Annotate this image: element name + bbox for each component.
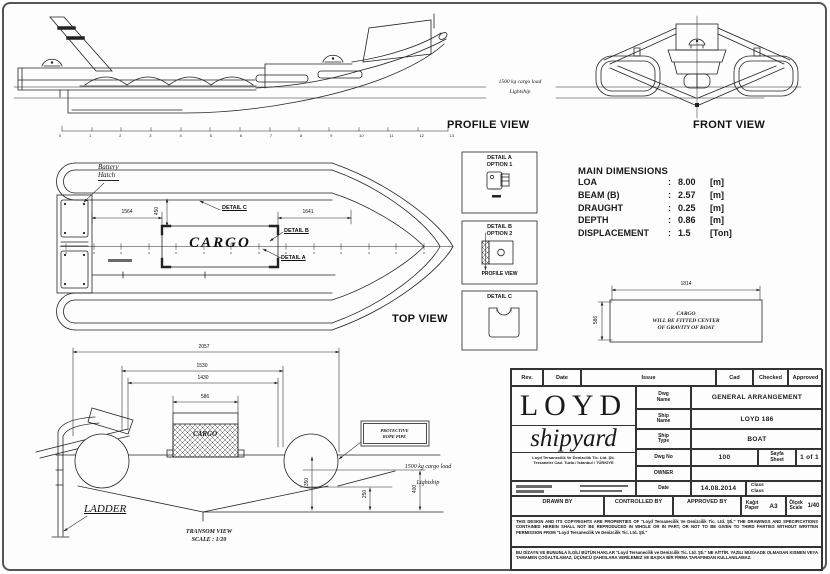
scale-cell: ÖlçekScale 1/40	[786, 496, 823, 516]
paper-value: A3	[762, 503, 785, 510]
dim-1814: 1814	[666, 281, 706, 287]
transom-scale-label: SCALE : 1/20	[178, 537, 240, 543]
transom-cargo-load-note: 1500 kg cargo load	[393, 464, 463, 470]
main-dimensions-block: MAIN DIMENSIONS LOA:8.00[m] BEAM (B):2.5…	[578, 166, 808, 241]
profile-cargo-load-note: 1500 kg cargo load	[488, 79, 552, 85]
date-value: 14.08.2014	[691, 481, 746, 496]
title-block: Rev. Date Issue Cad Checked Approved LOY…	[510, 368, 822, 570]
titleblock-header-checked: Checked	[753, 369, 788, 386]
scale-value: 1/40	[805, 503, 822, 509]
dwg-no-value: 100	[691, 449, 758, 466]
front-view-label: FRONT VIEW	[693, 119, 765, 131]
transom-lightship-note: Lightship	[393, 480, 463, 486]
dim-1430: 1430	[185, 375, 221, 381]
protective-rope-pipe-label: PROTECTIVE ROPE PIPE	[363, 424, 426, 443]
dim-350: 350	[304, 470, 310, 494]
ruler-number: 9	[327, 133, 335, 138]
approved-by-cell: APPROVED BY	[673, 496, 741, 516]
dwg-name-label: DwgName	[636, 386, 691, 409]
ship-type-value: BOAT	[691, 429, 823, 449]
ship-type-label: ShipType	[636, 429, 691, 449]
main-dimension-row: DEPTH:0.86[m]	[578, 215, 808, 228]
ruler-number: 13	[448, 133, 456, 138]
legal-text-english: THIS DESIGN AND ITS COPYRIGHTS ARE PROPE…	[511, 516, 823, 547]
class-cell: Class Class	[746, 481, 823, 496]
sheet-value: 1 of 1	[796, 449, 823, 466]
sheet-label: SayfaSheet	[758, 449, 796, 466]
detail-boxes-drawing	[462, 152, 537, 350]
paper-cell: KağıtPaper A3	[741, 496, 786, 516]
owner-label: OWNER	[636, 466, 691, 481]
ruler-number: 12	[418, 133, 426, 138]
owner-value-empty	[691, 466, 823, 481]
dim-250: 250	[362, 482, 368, 506]
illegible-phone-mark	[580, 490, 622, 492]
controlled-by-cell: CONTROLLED BY	[604, 496, 673, 516]
ruler-number: 10	[357, 133, 365, 138]
battery-hatch-label: Battery Hatch	[98, 164, 119, 181]
detail-b-callout: DETAIL B	[284, 228, 309, 234]
ruler-number: 8	[297, 133, 305, 138]
ruler-number: 1	[86, 133, 94, 138]
illegible-cert-mark	[516, 490, 544, 493]
top-view-cargo-label: CARGO	[168, 235, 272, 252]
scale-ruler-numbers: 012345678910111213	[56, 133, 456, 138]
ruler-number: 6	[237, 133, 245, 138]
date-label: Date	[636, 481, 691, 496]
illegible-text-mark	[108, 259, 132, 262]
dim-586-height: 586	[593, 308, 599, 332]
ruler-number: 7	[267, 133, 275, 138]
front-view-drawing	[596, 16, 798, 118]
detail-box-a-title: DETAIL A OPTION 1	[462, 155, 537, 168]
dim-1641: 1641	[288, 209, 328, 215]
dim-586: 586	[189, 394, 221, 400]
profile-view-label: PROFILE VIEW	[447, 119, 529, 131]
drawn-by-cell: DRAWN BY	[511, 496, 604, 516]
dwg-no-label: Dwg No	[636, 449, 691, 466]
ruler-number: 11	[388, 133, 396, 138]
detail-a-callout: DETAIL A	[281, 255, 306, 261]
titleblock-header-date: Date	[543, 369, 581, 386]
titleblock-header-cad: Cad	[716, 369, 753, 386]
dim-1564: 1564	[107, 209, 147, 215]
ladder-label: LADDER	[84, 503, 126, 515]
ruler-number: 2	[116, 133, 124, 138]
main-dimension-row: DRAUGHT:0.25[m]	[578, 203, 808, 216]
company-address: Loyd Tersanecilik Ve Denizcilik Tic. Ltd…	[511, 453, 636, 481]
dim-450: 450	[154, 199, 160, 223]
dim-2057: 2057	[186, 344, 222, 350]
main-dimension-row: LOA:8.00[m]	[578, 177, 808, 190]
dim-1530: 1530	[184, 363, 220, 369]
top-view-label: TOP VIEW	[392, 313, 448, 325]
transom-cargo-label: CARGO	[179, 430, 231, 438]
detail-box-c-title: DETAIL C	[462, 294, 537, 301]
titleblock-header-issue: Issue	[581, 369, 716, 386]
cargo-note-box: CARGO WILL BE FITTED CENTER OF GRAVITY O…	[610, 300, 762, 342]
detail-box-b-title: DETAIL B OPTION 2	[462, 224, 537, 237]
ruler-number: 4	[177, 133, 185, 138]
profile-lightship-note: Lightship	[488, 89, 552, 95]
dwg-name-value: GENERAL ARRANGEMENT	[691, 386, 823, 409]
ruler-number: 5	[207, 133, 215, 138]
illegible-phone-mark	[580, 485, 628, 487]
main-dimension-row: DISPLACEMENT:1.5[Ton]	[578, 228, 808, 241]
transom-view-label: TRANSOM VIEW	[178, 529, 240, 535]
profile-view-drawing	[14, 14, 801, 131]
company-contact-strip	[511, 481, 636, 496]
main-dimensions-rows: LOA:8.00[m] BEAM (B):2.57[m] DRAUGHT:0.2…	[578, 177, 808, 241]
detail-box-b-footer: PROFILE VIEW	[462, 271, 537, 277]
ship-name-value: LOYD 186	[691, 409, 823, 429]
ship-name-label: ShipName	[636, 409, 691, 429]
main-dimensions-title: MAIN DIMENSIONS	[578, 166, 808, 177]
ruler-number: 0	[56, 133, 64, 138]
titleblock-header-approved: Approved	[788, 369, 823, 386]
illegible-cert-mark	[516, 485, 552, 488]
detail-c-callout: DETAIL C	[222, 205, 247, 211]
legal-text-turkish: BU DİZAYN VE BUNUNLA İLGİLİ BÜTÜN HAKLAR…	[511, 547, 823, 571]
main-dimension-row: BEAM (B):2.57[m]	[578, 190, 808, 203]
company-name-shipyard: shipyard	[511, 426, 636, 453]
ruler-number: 3	[146, 133, 154, 138]
titleblock-header-rev: Rev.	[511, 369, 543, 386]
company-name-loyd: LOYD	[511, 386, 636, 426]
